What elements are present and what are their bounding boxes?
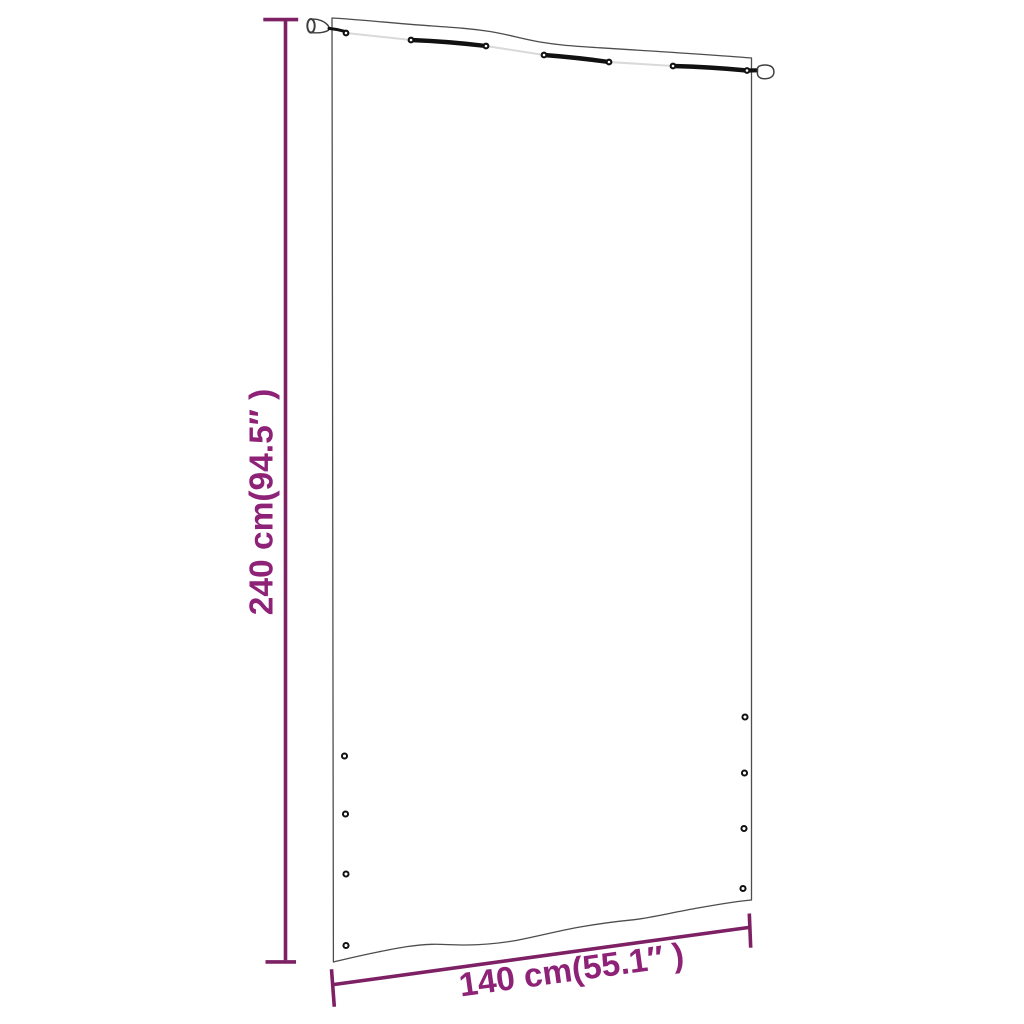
- svg-text:240 cm(94.5″ ): 240 cm(94.5″ ): [244, 389, 281, 616]
